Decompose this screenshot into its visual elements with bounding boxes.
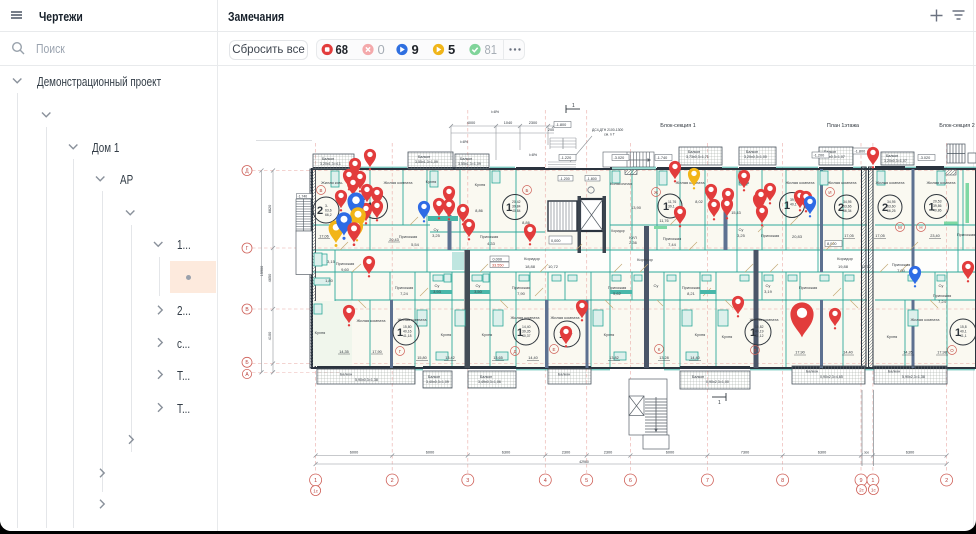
svg-text:Б: Б xyxy=(526,188,529,193)
svg-text:3,19: 3,19 xyxy=(764,289,773,294)
svg-text:11,76: 11,76 xyxy=(659,219,668,223)
svg-text:Прихожая: Прихожая xyxy=(761,233,780,238)
svg-text:14,40: 14,40 xyxy=(522,325,531,329)
svg-text:41,1: 41,1 xyxy=(960,334,967,338)
svg-text:42960: 42960 xyxy=(579,460,589,464)
svg-text:Су: Су xyxy=(766,283,771,288)
svg-text:41,18: 41,18 xyxy=(403,334,412,338)
svg-text:План 1этажа: План 1этажа xyxy=(827,123,859,129)
svg-text:Жилая комната: Жилая комната xyxy=(384,180,414,185)
svg-text:2: 2 xyxy=(945,478,948,484)
svg-text:В: В xyxy=(320,188,323,193)
svg-text:66,2: 66,2 xyxy=(325,213,332,217)
svg-text:-1.740: -1.740 xyxy=(657,156,668,160)
svg-text:Балкон: Балкон xyxy=(888,370,900,374)
svg-text:1с: 1с xyxy=(313,489,319,494)
svg-text:Прихожая: Прихожая xyxy=(608,285,627,290)
svg-text:Кухня: Кухня xyxy=(695,332,706,337)
svg-text:-3.020: -3.020 xyxy=(920,156,931,160)
svg-text:5: 5 xyxy=(585,478,588,484)
svg-text:11,76: 11,76 xyxy=(668,200,676,204)
svg-text:300: 300 xyxy=(864,451,869,455)
svg-text:Коридор: Коридор xyxy=(524,256,541,261)
svg-text:12,72: 12,72 xyxy=(861,264,872,269)
svg-text:Балкон: Балкон xyxy=(558,373,570,377)
svg-text:Ж: Ж xyxy=(654,190,658,195)
svg-text:0,000: 0,000 xyxy=(551,239,561,243)
svg-text:Прихожая: Прихожая xyxy=(957,232,976,237)
svg-text:Су: Су xyxy=(654,283,659,288)
svg-text:34,95: 34,95 xyxy=(887,200,896,204)
svg-text:1с: 1с xyxy=(871,488,877,493)
svg-text:10,72: 10,72 xyxy=(548,264,559,269)
svg-text:Кухня: Кухня xyxy=(722,334,733,339)
svg-text:3: 3 xyxy=(466,478,469,484)
svg-text:Су: Су xyxy=(939,283,944,288)
svg-text:-1.200: -1.200 xyxy=(814,154,825,158)
svg-text:15,8: 15,8 xyxy=(960,325,967,329)
svg-text:i=8%: i=8% xyxy=(529,153,538,157)
svg-text:М: М xyxy=(898,225,902,230)
svg-text:Прихожая: Прихожая xyxy=(395,285,414,290)
svg-text:Блок-секция 2: Блок-секция 2 xyxy=(939,123,974,129)
svg-text:Жилая комната: Жилая комната xyxy=(927,180,957,185)
svg-text:Су: Су xyxy=(434,227,439,232)
svg-text:Колясочная: Колясочная xyxy=(610,181,632,186)
svg-text:Прихожая: Прихожая xyxy=(799,285,818,290)
svg-text:1: 1 xyxy=(572,103,575,109)
svg-text:15900: 15900 xyxy=(260,266,264,277)
svg-text:0.000: 0.000 xyxy=(493,258,503,262)
svg-text:ДС4,ДГН 2100-1300: ДС4,ДГН 2100-1300 xyxy=(592,128,623,132)
svg-text:Жилая комната: Жилая комната xyxy=(876,180,906,185)
svg-text:20,42: 20,42 xyxy=(512,200,521,204)
svg-text:81: 81 xyxy=(485,42,498,57)
svg-text:Жилая ком-: Жилая ком- xyxy=(321,180,344,185)
svg-text:13,82: 13,82 xyxy=(609,356,619,360)
svg-text:Блок-секция 1: Блок-секция 1 xyxy=(660,123,695,129)
svg-text:17,98: 17,98 xyxy=(937,351,947,355)
svg-text:К: К xyxy=(658,347,661,352)
svg-text:5: 5 xyxy=(448,42,455,57)
svg-text:8,21: 8,21 xyxy=(687,291,696,296)
svg-text:17,06: 17,06 xyxy=(319,235,329,239)
svg-text:63,60: 63,60 xyxy=(887,205,896,209)
svg-text:-1.200: -1.200 xyxy=(560,177,570,181)
svg-text:6820: 6820 xyxy=(268,205,272,213)
svg-text:-1.800: -1.800 xyxy=(587,177,597,181)
svg-text:Жилая комната: Жилая комната xyxy=(911,317,941,322)
svg-text:4: 4 xyxy=(544,478,547,484)
svg-text:40,86: 40,86 xyxy=(933,209,942,213)
svg-text:40,84: 40,84 xyxy=(512,209,521,213)
svg-text:2300: 2300 xyxy=(562,451,570,455)
svg-text:40,37: 40,37 xyxy=(522,334,531,338)
svg-text:Балкон: Балкон xyxy=(688,150,700,154)
svg-text:Кухня: Кухня xyxy=(887,334,898,339)
svg-text:40,1: 40,1 xyxy=(960,330,967,334)
svg-text:-1.800: -1.800 xyxy=(855,150,866,154)
svg-text:Коридор: Коридор xyxy=(637,257,654,262)
svg-text:14,35: 14,35 xyxy=(903,351,913,355)
svg-text:1: 1 xyxy=(871,478,874,484)
svg-text:Балкон: Балкон xyxy=(886,154,898,158)
svg-text:41,12: 41,12 xyxy=(755,334,764,338)
svg-text:Балкон: Балкон xyxy=(460,157,472,161)
svg-text:1,80: 1,80 xyxy=(325,278,334,283)
svg-text:см. п Т: см. п Т xyxy=(604,133,615,137)
svg-text:Кухня: Кухня xyxy=(482,332,493,337)
svg-text:15,80: 15,80 xyxy=(417,356,427,360)
svg-text:15,80: 15,80 xyxy=(403,325,412,329)
svg-text:Жилая комната: Жилая комната xyxy=(786,180,816,185)
svg-text:13,90: 13,90 xyxy=(631,205,642,210)
svg-text:6000: 6000 xyxy=(426,451,434,455)
svg-text:3-: 3- xyxy=(325,204,328,208)
svg-text:1040: 1040 xyxy=(504,121,512,125)
svg-text:5,90х2,3=1,38: 5,90х2,3=1,38 xyxy=(902,375,925,379)
svg-text:17,90: 17,90 xyxy=(372,350,382,354)
svg-text:66,25: 66,25 xyxy=(887,209,896,213)
svg-text:3,25: 3,25 xyxy=(432,233,441,238)
svg-text:8: 8 xyxy=(781,478,784,484)
svg-text:39,84: 39,84 xyxy=(512,205,521,209)
svg-text:9: 9 xyxy=(412,42,419,57)
svg-text:Кухня: Кухня xyxy=(475,182,486,187)
svg-text:Прихожая: Прихожая xyxy=(933,293,952,298)
svg-text:Жилая комната: Жилая комната xyxy=(357,318,387,323)
svg-text:Прихожая: Прихожая xyxy=(512,285,531,290)
svg-text:8,02: 8,02 xyxy=(695,200,702,204)
svg-text:6: 6 xyxy=(629,478,632,484)
svg-text:-3.020: -3.020 xyxy=(614,156,625,160)
svg-text:Е: Е xyxy=(553,347,556,352)
svg-text:Д: Д xyxy=(514,349,517,354)
svg-text:5,90х0,3=1,38: 5,90х0,3=1,38 xyxy=(355,378,378,382)
svg-text:i=8%: i=8% xyxy=(491,110,500,114)
svg-text:9,60: 9,60 xyxy=(341,267,350,272)
svg-text:66,34: 66,34 xyxy=(843,209,852,213)
svg-text:3,25: 3,25 xyxy=(737,233,746,238)
svg-text:9: 9 xyxy=(859,478,862,484)
svg-text:3,55х1,3=1,09: 3,55х1,3=1,09 xyxy=(458,162,481,166)
svg-text:7,24: 7,24 xyxy=(938,299,947,304)
svg-text:Балкон: Балкон xyxy=(418,155,430,159)
svg-text:Жилая комната: Жилая комната xyxy=(551,315,581,320)
svg-text:15,82: 15,82 xyxy=(755,325,764,329)
svg-text:1: 1 xyxy=(718,400,721,406)
svg-text:200: 200 xyxy=(548,128,554,132)
svg-text:13,65: 13,65 xyxy=(493,356,503,360)
svg-text:7,44: 7,44 xyxy=(668,242,677,247)
svg-text:Жилая комната: Жилая комната xyxy=(750,317,780,322)
svg-text:33.550: 33.550 xyxy=(492,264,504,268)
svg-text:20,53: 20,53 xyxy=(933,200,942,204)
svg-text:3,93: 3,93 xyxy=(433,289,442,294)
svg-text:23,40: 23,40 xyxy=(930,234,940,238)
svg-text:6000: 6000 xyxy=(666,451,674,455)
svg-text:8,86: 8,86 xyxy=(475,209,482,213)
svg-text:40,16: 40,16 xyxy=(403,330,412,334)
svg-text:0,90х2,3=4,65: 0,90х2,3=4,65 xyxy=(820,375,843,379)
svg-text:6300: 6300 xyxy=(502,451,510,455)
svg-text:4000: 4000 xyxy=(467,121,475,125)
svg-text:Жилая комната: Жилая комната xyxy=(511,315,541,320)
svg-text:13,28: 13,28 xyxy=(659,356,669,360)
svg-text:Балкон: Балкон xyxy=(322,157,334,161)
svg-text:18,88: 18,88 xyxy=(525,264,536,269)
svg-text:34,95: 34,95 xyxy=(843,200,852,204)
svg-text:0: 0 xyxy=(378,42,385,57)
svg-text:17,05: 17,05 xyxy=(844,234,854,238)
svg-text:4650: 4650 xyxy=(268,274,272,282)
svg-text:5,62: 5,62 xyxy=(613,291,622,296)
svg-text:63,6: 63,6 xyxy=(325,209,332,213)
svg-text:Прихожая: Прихожая xyxy=(480,234,499,239)
svg-text:4,33: 4,33 xyxy=(487,241,496,246)
svg-text:Балкон: Балкон xyxy=(746,150,758,154)
svg-text:Жилая комната: Жилая комната xyxy=(828,180,858,185)
svg-text:3,20х1,3=4,1: 3,20х1,3=4,1 xyxy=(320,162,341,166)
svg-text:Балкон: Балкон xyxy=(806,370,818,374)
svg-text:6300: 6300 xyxy=(906,451,914,455)
svg-text:19,88: 19,88 xyxy=(838,264,849,269)
svg-text:2: 2 xyxy=(317,205,323,217)
svg-text:i=8%: i=8% xyxy=(460,140,469,144)
svg-text:Балкон: Балкон xyxy=(480,375,492,379)
svg-text:7,24: 7,24 xyxy=(400,291,409,296)
svg-text:Прихожая: Прихожая xyxy=(682,285,701,290)
svg-text:3,50: 3,50 xyxy=(474,289,483,294)
svg-text:Су: Су xyxy=(739,227,744,232)
svg-text:40,1: 40,1 xyxy=(790,203,797,207)
svg-text:Л: Л xyxy=(754,348,757,353)
svg-text:4100: 4100 xyxy=(268,332,272,340)
svg-text:3,15: 3,15 xyxy=(327,259,336,264)
svg-text:-1.800: -1.800 xyxy=(556,123,567,127)
svg-text:7,00: 7,00 xyxy=(897,268,906,273)
svg-text:2с: 2с xyxy=(859,488,865,493)
svg-text:3,20х0,3=1,07: 3,20х0,3=1,07 xyxy=(884,159,907,163)
svg-text:5,54: 5,54 xyxy=(411,242,420,247)
svg-text:-1.220: -1.220 xyxy=(561,156,572,160)
svg-text:1: 1 xyxy=(314,478,317,484)
svg-text:6300: 6300 xyxy=(818,451,826,455)
svg-text:39,86: 39,86 xyxy=(933,204,942,208)
svg-text:3,73х0,3=1,71: 3,73х0,3=1,71 xyxy=(686,155,709,159)
svg-text:Су: Су xyxy=(435,283,440,288)
svg-text:3,49х0,3=1,06: 3,49х0,3=1,06 xyxy=(478,380,501,384)
svg-text:И: И xyxy=(828,190,831,195)
svg-text:15,43: 15,43 xyxy=(731,211,741,215)
svg-text:Кухня: Кухня xyxy=(315,330,326,335)
svg-text:2,36: 2,36 xyxy=(629,240,638,245)
svg-text:14,40: 14,40 xyxy=(690,356,700,360)
svg-text:Г: Г xyxy=(246,246,249,252)
svg-text:2: 2 xyxy=(391,478,394,484)
svg-text:2300: 2300 xyxy=(529,121,537,125)
svg-text:Балкон: Балкон xyxy=(428,375,440,379)
svg-text:63,66: 63,66 xyxy=(843,205,852,209)
svg-text:14,40: 14,40 xyxy=(843,351,853,355)
svg-text:3,20х0,3=1,00: 3,20х0,3=1,00 xyxy=(744,155,767,159)
svg-text:14,40: 14,40 xyxy=(528,356,538,360)
svg-text:17,90: 17,90 xyxy=(795,351,805,355)
svg-text:Су: Су xyxy=(476,283,481,288)
svg-text:13,42: 13,42 xyxy=(445,356,455,360)
svg-text:40,19: 40,19 xyxy=(755,330,764,334)
svg-text:7300: 7300 xyxy=(741,451,749,455)
svg-text:Прихожая: Прихожая xyxy=(399,234,418,239)
svg-text:17,05: 17,05 xyxy=(875,234,885,238)
svg-text:Жилая комната: Жилая комната xyxy=(398,317,428,322)
svg-text:68: 68 xyxy=(336,42,349,57)
svg-text:14,35: 14,35 xyxy=(339,350,349,354)
svg-text:20,43: 20,43 xyxy=(389,238,399,242)
svg-text:Балкон: Балкон xyxy=(692,375,704,379)
svg-text:7: 7 xyxy=(706,478,709,484)
svg-text:0,90х2,3=1,00: 0,90х2,3=1,00 xyxy=(706,380,729,384)
svg-text:20,83: 20,83 xyxy=(792,234,803,239)
svg-text:Кухня: Кухня xyxy=(426,179,437,184)
svg-text:39,35: 39,35 xyxy=(522,330,531,334)
svg-text:Кухня: Кухня xyxy=(441,332,452,337)
svg-text:Балкон: Балкон xyxy=(340,373,352,377)
svg-text:-1.740: -1.740 xyxy=(298,195,308,199)
svg-text:Прихожая: Прихожая xyxy=(892,262,911,267)
svg-text:3,55х1,3=1,09: 3,55х1,3=1,09 xyxy=(415,160,438,164)
svg-text:Кухня: Кухня xyxy=(604,332,615,337)
svg-text:Коридор: Коридор xyxy=(611,229,625,233)
svg-text:7,90: 7,90 xyxy=(517,291,526,296)
svg-text:Прихожая: Прихожая xyxy=(336,261,355,266)
svg-text:Коридор: Коридор xyxy=(837,256,854,261)
svg-text:3,40х0,3=1,09: 3,40х0,3=1,09 xyxy=(426,380,449,384)
svg-text:О: О xyxy=(950,348,954,353)
svg-text:Н: Н xyxy=(919,225,922,230)
svg-text:39,1: 39,1 xyxy=(668,205,675,209)
svg-text:Прихожая: Прихожая xyxy=(663,236,682,241)
svg-text:2300: 2300 xyxy=(604,451,612,455)
svg-text:6000: 6000 xyxy=(350,451,358,455)
